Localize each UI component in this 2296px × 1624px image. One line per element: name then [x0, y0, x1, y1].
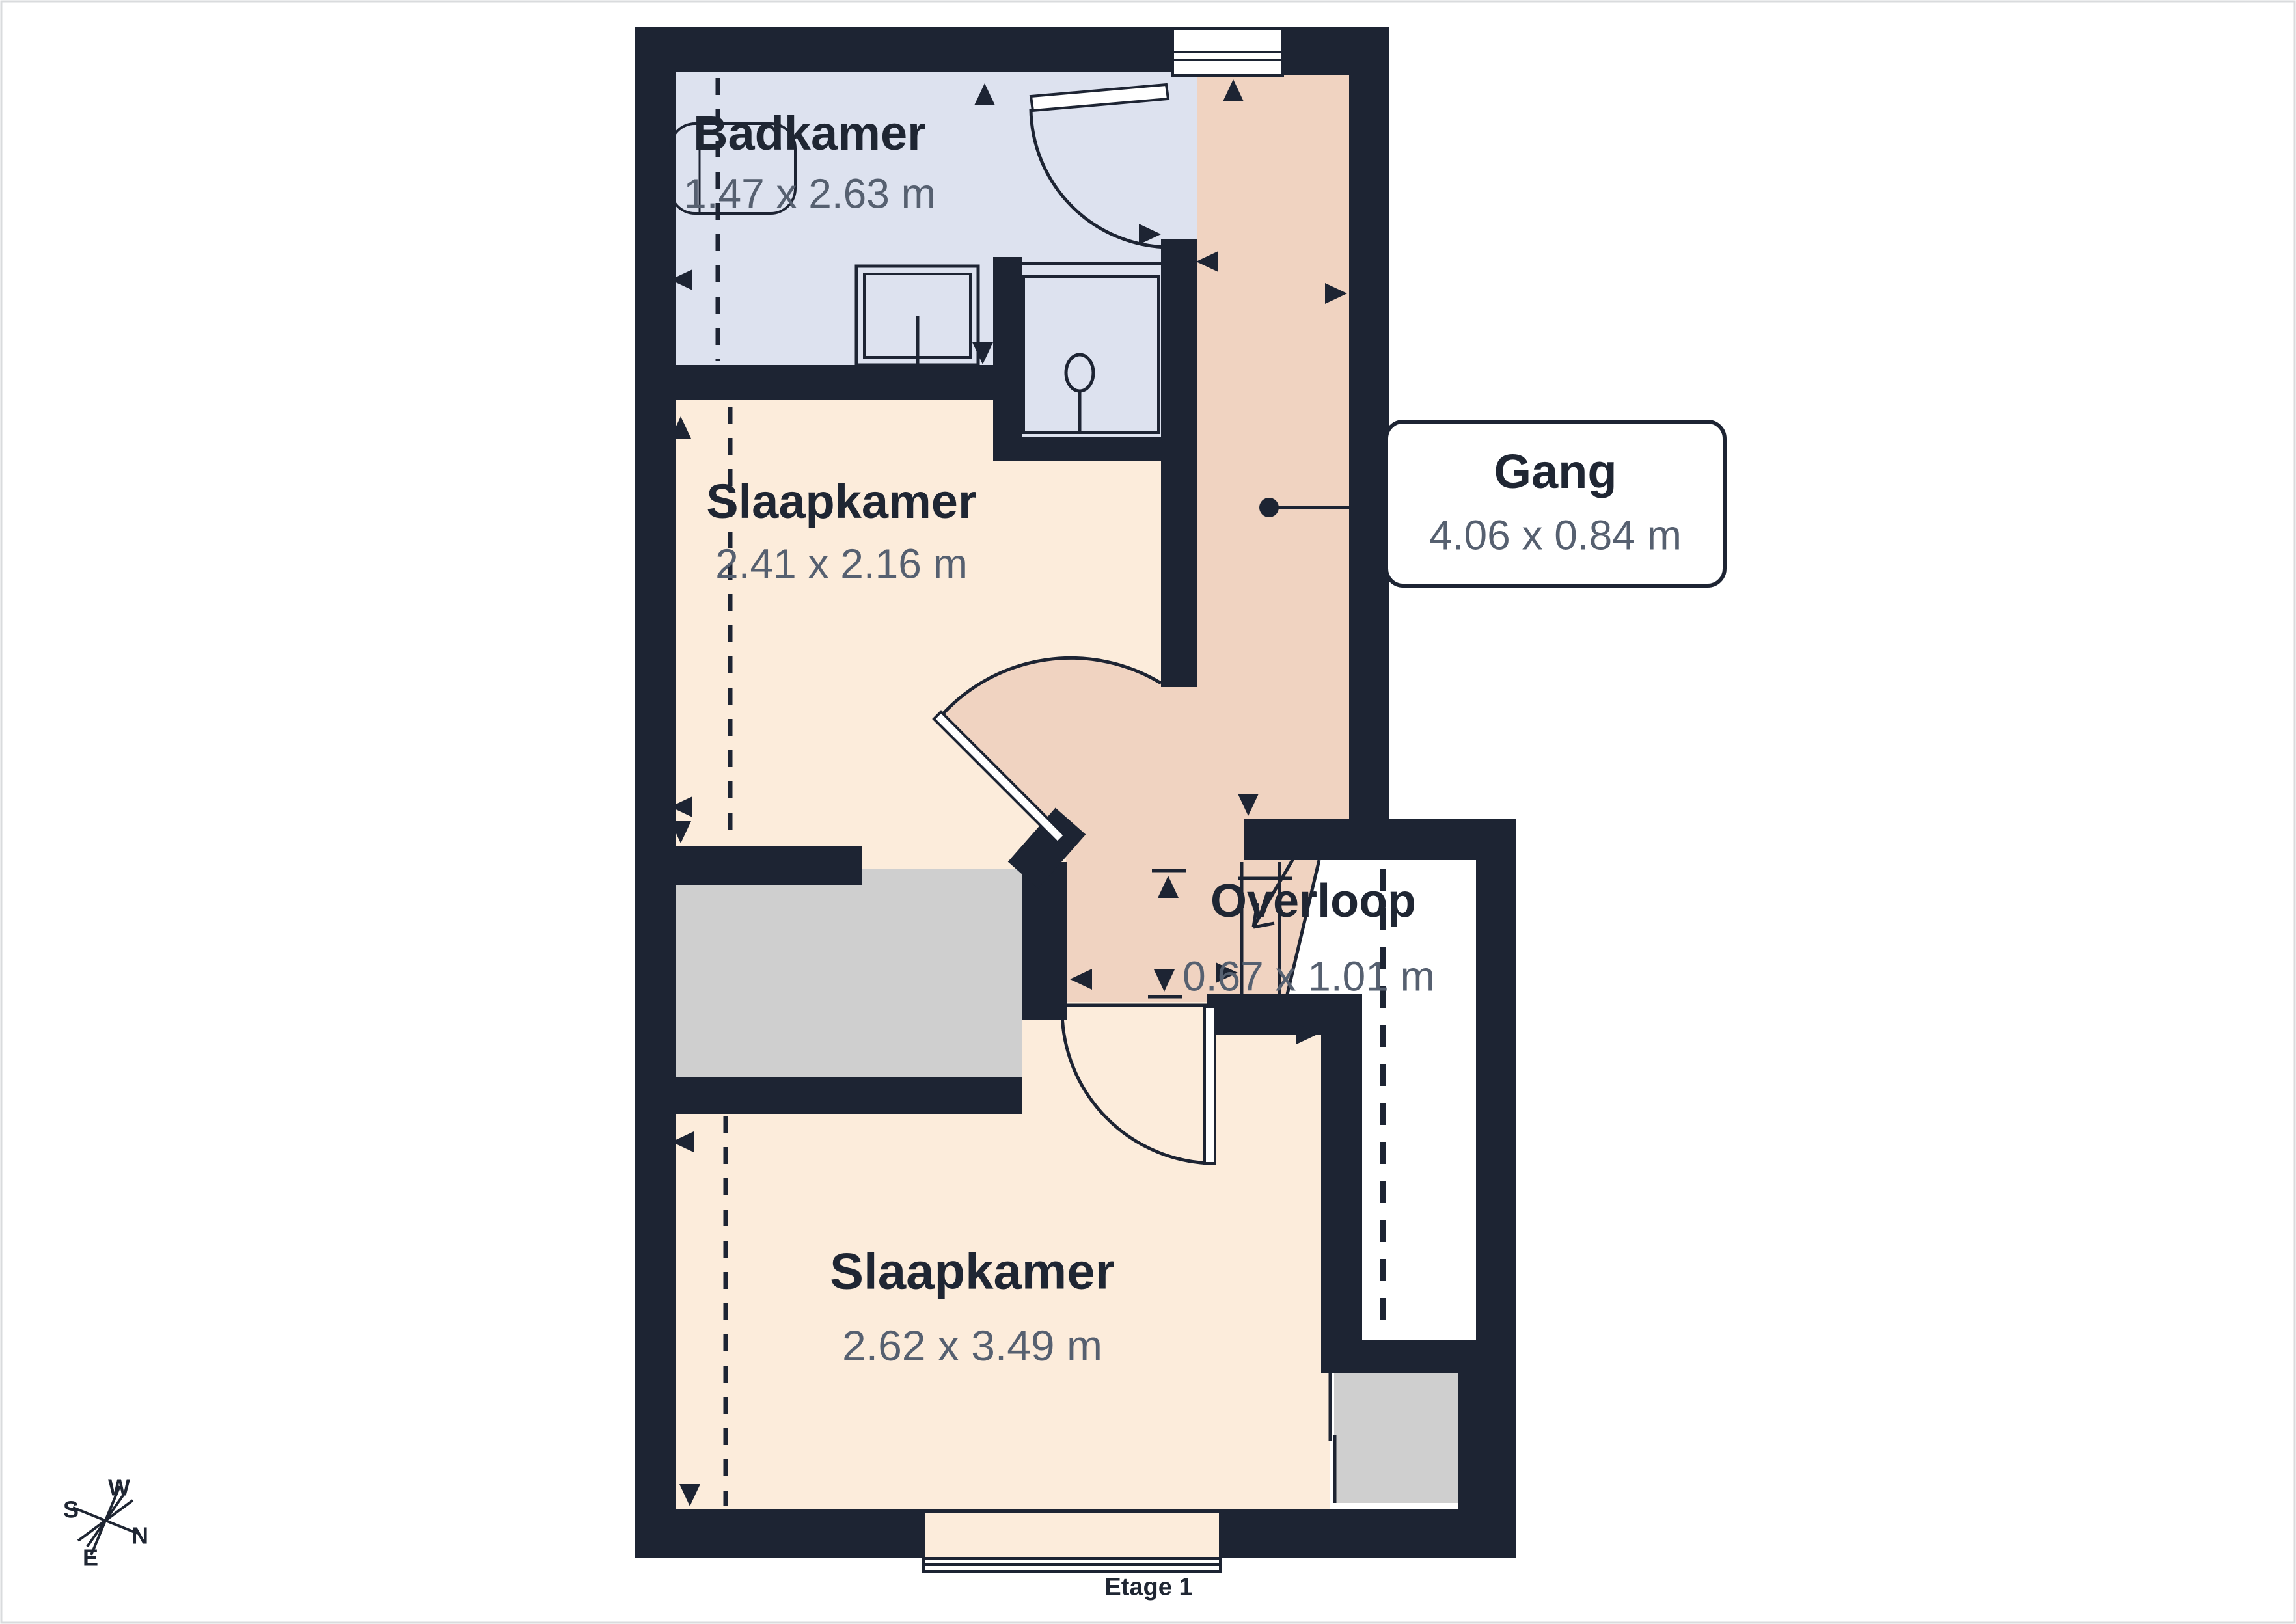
- window-bay: [923, 1512, 1220, 1573]
- room-slaapkamer-2: [670, 1106, 1330, 1513]
- floor-label: Etage 1: [1104, 1573, 1192, 1601]
- room-dims-slaapkamer-1: 2.41 x 2.16 m: [715, 540, 968, 587]
- closet-1: [670, 869, 1022, 1077]
- room-dims-overloop: 0.67 x 1.01 m: [1182, 953, 1435, 999]
- room-label-overloop: Overloop: [1210, 875, 1416, 927]
- room-label-gang: Gang: [1494, 444, 1617, 498]
- room-dims-slaapkamer-2: 2.62 x 3.49 m: [842, 1321, 1102, 1370]
- compass-south: S: [63, 1496, 79, 1523]
- compass-east: E: [83, 1545, 98, 1571]
- floorplan: Gang 4.06 x 0.84 m Badkamer 1.47 x 2.63 …: [0, 0, 2296, 1624]
- room-label-slaapkamer-2: Slaapkamer: [830, 1242, 1115, 1299]
- room-label-slaapkamer-1: Slaapkamer: [706, 474, 977, 528]
- room-label-badkamer: Badkamer: [693, 106, 926, 160]
- closet-2: [1334, 1373, 1458, 1503]
- compass-west: W: [108, 1474, 130, 1501]
- room-dims-badkamer: 1.47 x 2.63 m: [683, 170, 936, 217]
- window-top: [1173, 29, 1283, 75]
- floorplan-page: Gang 4.06 x 0.84 m Badkamer 1.47 x 2.63 …: [0, 0, 2296, 1624]
- room-dims-gang: 4.06 x 0.84 m: [1429, 511, 1682, 558]
- compass-north: N: [131, 1522, 148, 1549]
